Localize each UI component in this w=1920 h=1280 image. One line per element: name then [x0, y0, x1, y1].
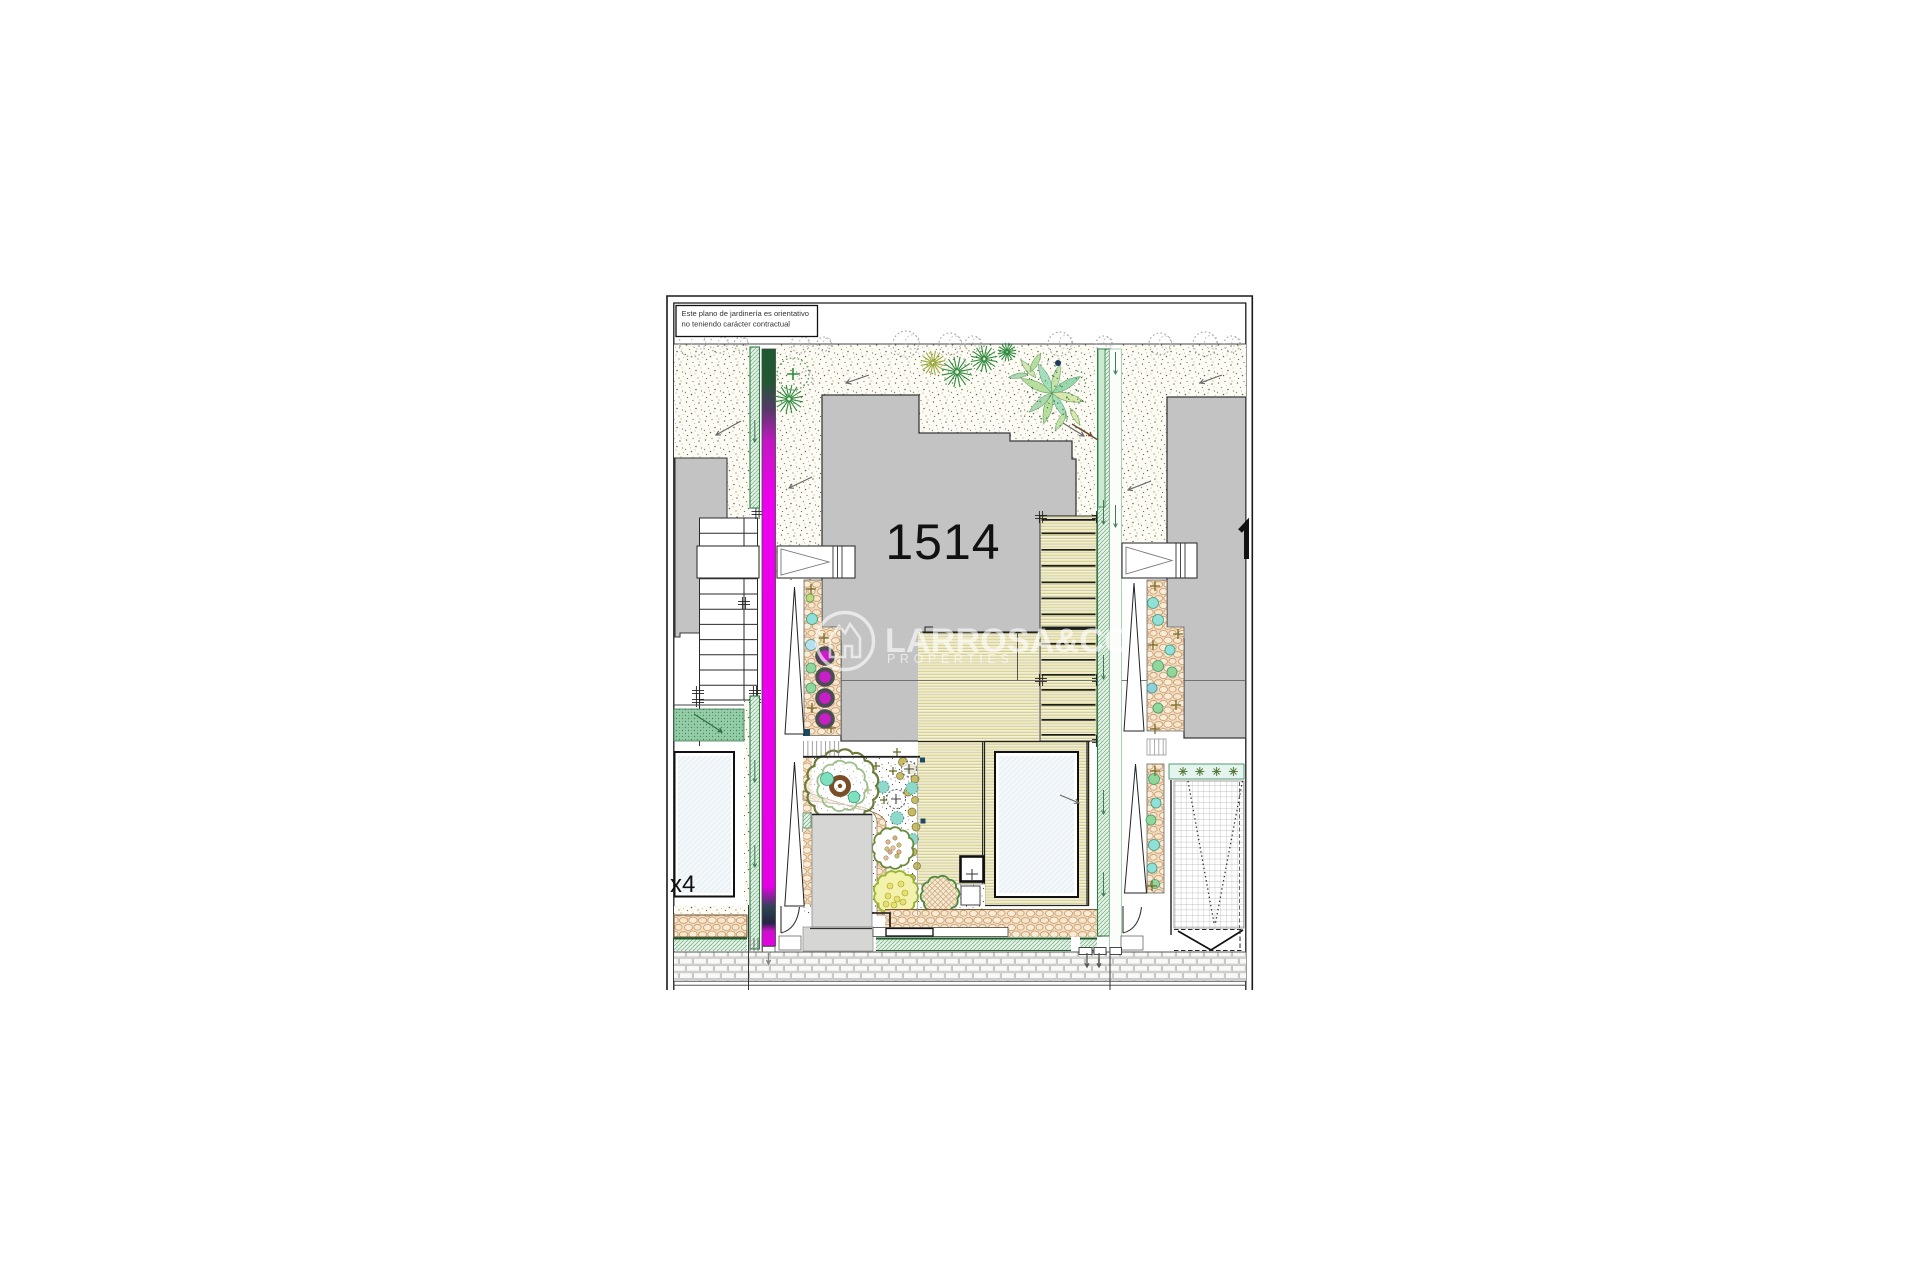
svg-text:PROPERTIES: PROPERTIES: [887, 652, 1013, 666]
svg-text:Este plano de jardinería es or: Este plano de jardinería es orientativo: [682, 309, 810, 318]
svg-text:x4: x4: [670, 871, 695, 898]
svg-text:no teniendo carácter contractu: no teniendo carácter contractual: [682, 320, 791, 329]
svg-text:1514: 1514: [885, 514, 1000, 570]
